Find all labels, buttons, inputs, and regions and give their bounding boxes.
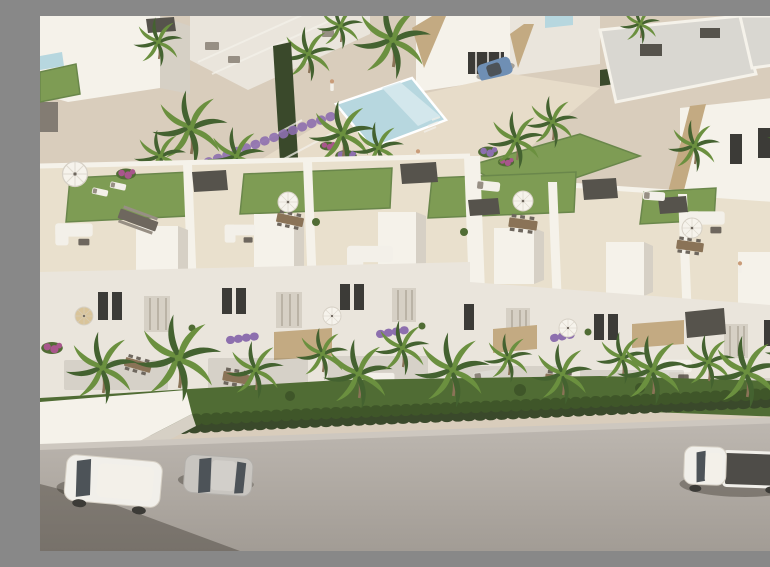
stone-panel [493,325,537,353]
window [354,284,364,310]
parasol [63,162,88,187]
bg-furniture [205,42,219,50]
window [236,288,246,314]
aerial-render: Aerial 3D architectural rendering of a m… [40,16,770,551]
window [98,292,108,320]
parasol [682,218,702,238]
bg-pergola [146,17,176,33]
pergola-box [468,198,500,216]
stair-tower [738,252,770,306]
parasol [513,191,533,211]
potted-plant [312,218,320,226]
bg-stairs [40,102,58,132]
potted-plant [419,323,426,330]
person [738,261,742,273]
window [608,314,618,340]
window-louver [276,292,302,328]
window-louver [392,288,416,322]
potted-plant [585,329,592,336]
stone-panel [632,320,684,348]
flowering-shrub [478,147,498,158]
scene-canvas [40,16,770,551]
pergola-box [400,162,438,184]
window-louver [144,296,170,332]
window [340,284,350,310]
window [464,304,474,330]
window [594,314,604,340]
stair-tower [606,242,653,296]
garden-shrub [514,384,526,396]
roof-vent [700,28,720,38]
flowering-shrub [41,342,63,354]
awning-dark [685,308,726,338]
rooftop-lawn [240,168,392,214]
bg-window [758,128,770,158]
garden-shrub [285,391,295,401]
parasol [323,307,341,325]
window [112,292,122,320]
bg-window [730,134,742,164]
roof-vent [640,44,662,56]
pickup-truck [679,446,770,499]
person [330,79,334,91]
window [222,288,232,314]
window [764,320,770,346]
garden-parasol [75,307,93,325]
roof-shrub [116,169,136,180]
silver-car [177,454,255,497]
potted-plant [460,228,468,236]
parasol [559,319,577,337]
window-louver [724,324,748,358]
daybed [643,191,666,201]
parasol [278,192,298,212]
flowering-shrub [498,158,514,167]
stair-tower [494,228,544,284]
bg-furniture [228,56,240,63]
pergola-box [582,178,618,200]
pergola-box [192,170,228,192]
